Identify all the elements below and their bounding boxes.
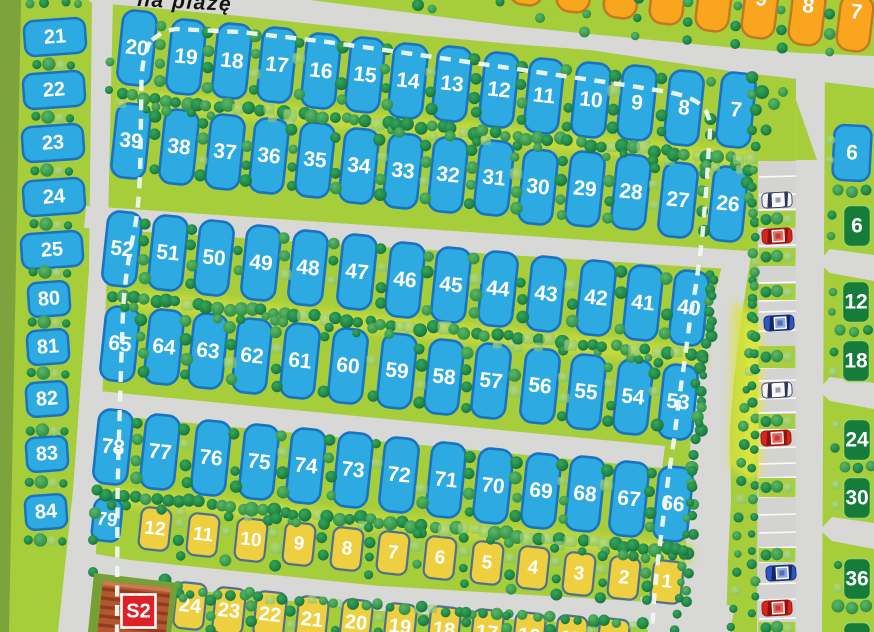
svg-text:10: 10 [578,87,604,112]
svg-text:76: 76 [198,445,224,470]
svg-text:44: 44 [485,276,511,301]
svg-text:6: 6 [846,141,859,165]
svg-text:18: 18 [219,48,245,73]
svg-text:74: 74 [293,453,319,478]
svg-text:83: 83 [35,442,59,465]
svg-text:67: 67 [616,486,642,511]
svg-text:55: 55 [573,379,599,404]
svg-text:17: 17 [264,52,290,77]
svg-text:19: 19 [173,44,199,69]
svg-text:23: 23 [217,599,241,623]
svg-text:6: 6 [851,215,863,238]
svg-text:73: 73 [340,457,366,482]
svg-text:24: 24 [845,429,869,452]
svg-text:25: 25 [40,238,64,261]
svg-text:77: 77 [147,439,173,464]
svg-text:18: 18 [844,350,868,373]
svg-text:9: 9 [630,91,644,115]
svg-text:30: 30 [525,174,551,199]
svg-text:49: 49 [248,250,274,275]
svg-text:21: 21 [300,608,324,632]
svg-text:14: 14 [395,68,421,93]
svg-text:11: 11 [192,524,215,547]
svg-text:6: 6 [434,547,447,569]
svg-text:2: 2 [618,567,631,589]
svg-text:82: 82 [35,387,59,410]
svg-text:80: 80 [37,287,61,310]
svg-text:45: 45 [438,272,464,297]
svg-text:11: 11 [532,83,557,108]
svg-text:81: 81 [36,335,60,358]
svg-text:18: 18 [432,618,456,632]
svg-text:19: 19 [388,615,412,632]
svg-text:8: 8 [341,538,354,560]
svg-text:30: 30 [845,487,868,510]
svg-text:13: 13 [439,71,465,96]
svg-text:36: 36 [256,143,282,168]
svg-text:40: 40 [676,295,702,320]
svg-text:69: 69 [528,478,554,503]
svg-text:62: 62 [239,343,265,368]
svg-text:22: 22 [42,78,66,101]
svg-text:78: 78 [100,434,126,459]
svg-text:70: 70 [480,473,506,498]
svg-text:51: 51 [155,240,181,265]
svg-text:54: 54 [620,384,646,409]
svg-text:64: 64 [151,334,177,359]
svg-text:33: 33 [390,158,416,183]
svg-text:71: 71 [433,467,459,492]
svg-text:63: 63 [195,338,221,363]
svg-text:56: 56 [527,373,553,398]
svg-text:3: 3 [573,563,586,585]
svg-text:27: 27 [665,187,691,212]
svg-text:21: 21 [43,25,67,48]
svg-text:28: 28 [618,179,644,204]
svg-text:34: 34 [346,153,372,178]
svg-text:10: 10 [239,528,262,551]
svg-text:16: 16 [308,58,334,83]
svg-text:68: 68 [572,481,598,506]
svg-text:36: 36 [845,568,868,591]
svg-text:24: 24 [42,185,67,209]
svg-text:23: 23 [41,131,65,154]
svg-text:42: 42 [583,285,609,310]
svg-text:15: 15 [352,62,378,87]
svg-text:17: 17 [475,621,499,632]
svg-text:61: 61 [287,348,313,373]
svg-text:46: 46 [392,267,418,292]
svg-text:38: 38 [166,134,192,159]
svg-text:35: 35 [302,147,328,172]
svg-text:7: 7 [729,98,743,122]
svg-text:37: 37 [212,139,238,164]
svg-text:60: 60 [335,353,361,378]
svg-text:29: 29 [572,176,598,201]
svg-text:41: 41 [630,290,656,315]
svg-text:20: 20 [344,611,368,632]
svg-text:43: 43 [533,281,559,306]
svg-text:84: 84 [34,500,59,524]
svg-text:12: 12 [486,77,512,102]
svg-text:48: 48 [295,255,321,280]
svg-text:22: 22 [258,603,282,627]
svg-text:26: 26 [715,191,741,216]
svg-text:58: 58 [431,364,457,389]
svg-text:75: 75 [246,449,272,474]
svg-text:50: 50 [201,245,227,270]
svg-text:31: 31 [481,165,507,190]
svg-text:12: 12 [844,291,867,314]
svg-text:57: 57 [478,368,504,393]
svg-text:9: 9 [293,533,306,555]
svg-text:32: 32 [435,162,461,187]
svg-text:12: 12 [143,517,166,540]
svg-text:47: 47 [344,259,370,284]
svg-text:59: 59 [384,358,410,383]
svg-text:7: 7 [387,542,400,564]
svg-text:16: 16 [517,624,541,632]
svg-text:S2: S2 [126,601,150,623]
svg-text:72: 72 [386,462,412,487]
